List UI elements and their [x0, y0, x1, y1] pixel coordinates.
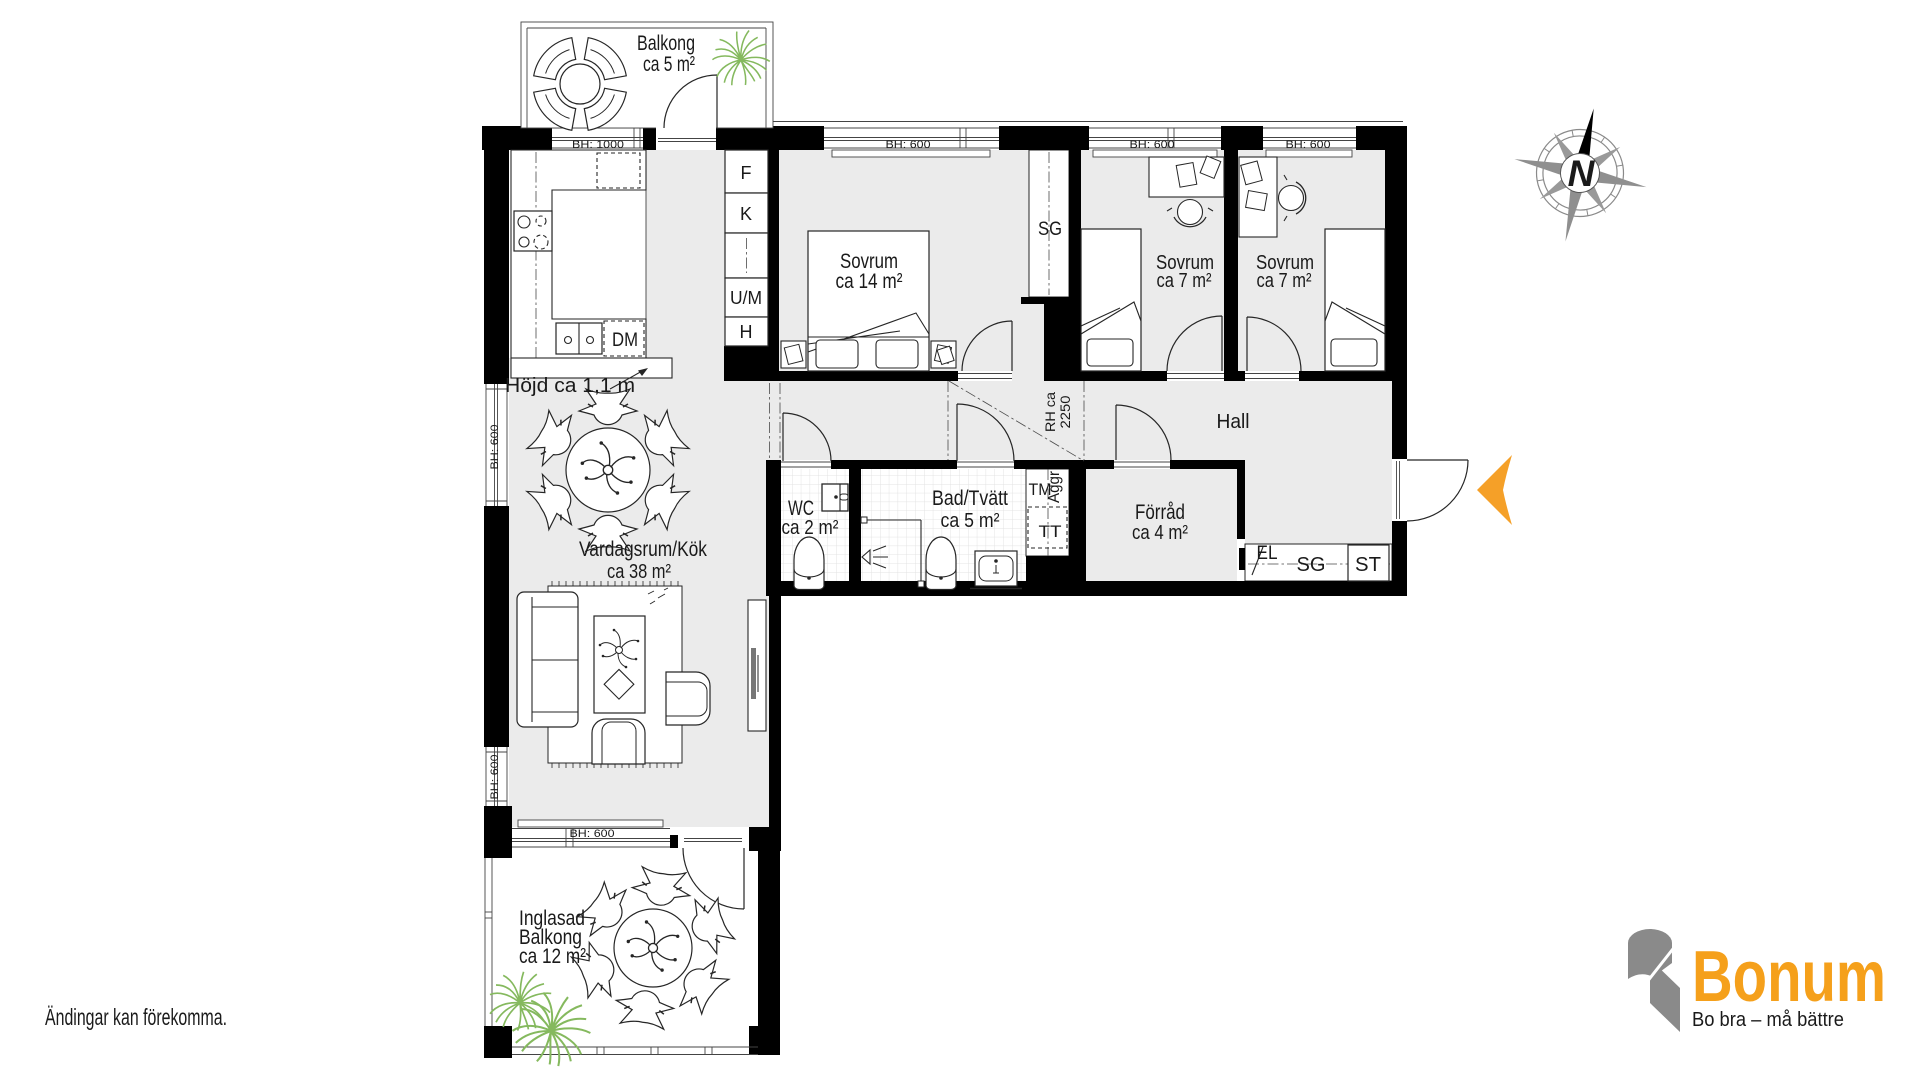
svg-text:ca 5 m²: ca 5 m² — [941, 510, 1000, 532]
svg-text:BH: 600: BH: 600 — [489, 425, 501, 470]
svg-text:ca 2 m²: ca 2 m² — [782, 517, 839, 539]
svg-text:ca 5 m²: ca 5 m² — [643, 53, 695, 76]
svg-text:ca 4 m²: ca 4 m² — [1132, 522, 1188, 544]
svg-text:ca 14 m²: ca 14 m² — [836, 270, 903, 293]
svg-text:F: F — [741, 163, 752, 183]
svg-text:Förråd: Förråd — [1135, 501, 1185, 524]
svg-text:EL: EL — [1257, 543, 1278, 564]
svg-text:ca 7 m²: ca 7 m² — [1257, 270, 1312, 292]
svg-text:TT: TT — [1039, 522, 1062, 541]
svg-text:Balkong: Balkong — [637, 32, 695, 55]
svg-text:Hall: Hall — [1217, 411, 1250, 433]
svg-text:K: K — [740, 204, 752, 224]
svg-text:ca 7 m²: ca 7 m² — [1157, 270, 1212, 292]
svg-text:BH: 1000: BH: 1000 — [572, 139, 624, 151]
svg-text:ST: ST — [1355, 554, 1381, 576]
svg-text:Bonum: Bonum — [1692, 937, 1886, 1017]
svg-text:RH ca: RH ca — [1042, 392, 1058, 432]
svg-text:ca 12 m²: ca 12 m² — [519, 945, 586, 968]
svg-text:BH: 600: BH: 600 — [886, 139, 931, 151]
svg-text:SG: SG — [1038, 219, 1062, 240]
svg-text:Aggr: Aggr — [1046, 470, 1063, 503]
svg-text:ca 38 m²: ca 38 m² — [607, 561, 671, 583]
svg-text:Ändingar kan förekomma.: Ändingar kan förekomma. — [45, 1004, 227, 1030]
svg-text:BH: 600: BH: 600 — [570, 828, 615, 840]
svg-text:BH: 600: BH: 600 — [1130, 139, 1175, 151]
svg-text:Höjd ca 1,1 m: Höjd ca 1,1 m — [505, 375, 635, 397]
svg-text:2250: 2250 — [1057, 395, 1073, 428]
svg-text:SG: SG — [1297, 554, 1326, 576]
svg-text:U/M: U/M — [730, 288, 762, 308]
svg-text:BH: 600: BH: 600 — [489, 755, 501, 800]
svg-text:N: N — [1568, 153, 1596, 194]
svg-text:Vardagsrum/Kök: Vardagsrum/Kök — [579, 538, 707, 561]
svg-text:DM: DM — [612, 330, 638, 351]
svg-text:Bo bra – må bättre: Bo bra – må bättre — [1692, 1009, 1844, 1031]
svg-text:H: H — [740, 322, 753, 342]
svg-text:Bad/Tvätt: Bad/Tvätt — [932, 487, 1008, 510]
svg-text:BH: 600: BH: 600 — [1286, 139, 1331, 151]
